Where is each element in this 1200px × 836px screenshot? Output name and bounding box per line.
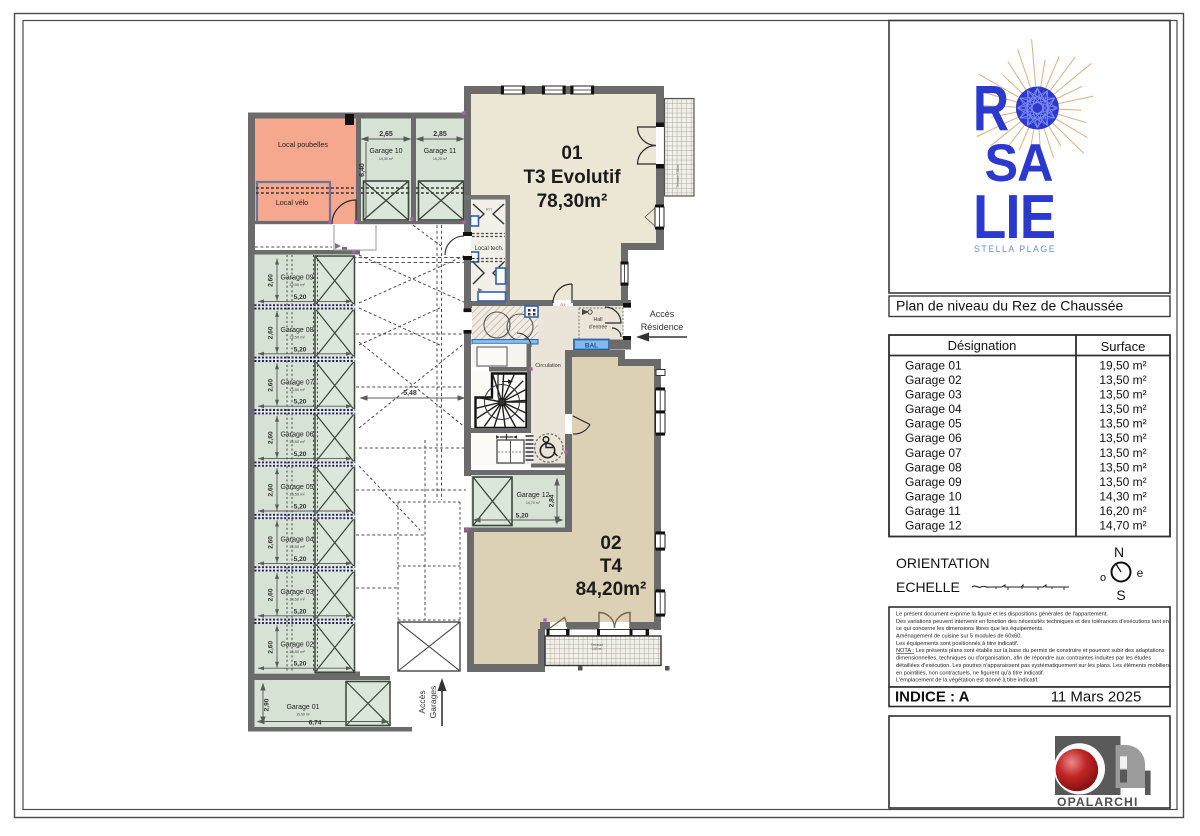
svg-text:2,60: 2,60 (268, 326, 275, 339)
svg-text:Garage 03: Garage 03 (280, 589, 313, 596)
svg-text:14,30 m²: 14,30 m² (1099, 490, 1146, 504)
svg-text:Garage 11: Garage 11 (905, 504, 961, 518)
svg-text:Garages: Garages (428, 686, 438, 719)
svg-text:5,20: 5,20 (294, 346, 307, 353)
svg-text:16,20 m²: 16,20 m² (1099, 504, 1146, 518)
svg-text:2,60: 2,60 (268, 536, 275, 549)
svg-text:5,20: 5,20 (294, 294, 307, 301)
svg-text:84,20m²: 84,20m² (576, 579, 647, 600)
svg-text:6,40: 6,40 (359, 163, 366, 177)
svg-text:13,50 m²: 13,50 m² (1099, 446, 1146, 460)
svg-text:13,50 m²: 13,50 m² (1099, 417, 1146, 431)
svg-text:Les équipements sont positionn: Les équipements sont positionnés à titre… (896, 641, 1019, 647)
svg-text:2,60: 2,60 (268, 274, 275, 287)
svg-text:13,50 m²: 13,50 m² (1099, 460, 1146, 474)
svg-text:T4: T4 (600, 556, 623, 577)
svg-text:Garage 08: Garage 08 (280, 327, 313, 334)
svg-text:BAL: BAL (585, 343, 598, 350)
svg-text:LIE: LIE (973, 183, 1055, 252)
svg-text:NOTA : Les présents plans sont: NOTA : Les présents plans sont établis s… (896, 648, 1165, 654)
svg-text:Garage 11: Garage 11 (424, 148, 457, 155)
svg-text:13,50 m²: 13,50 m² (1099, 431, 1146, 445)
svg-text:détaillées d'exécution. Les po: détaillées d'exécution. Les poutres n'ap… (896, 663, 1170, 669)
svg-text:L'emplacement de la végétation: L'emplacement de la végétation est donné… (896, 678, 1039, 684)
svg-text:Accès: Accès (417, 690, 427, 713)
svg-text:14,70 m²: 14,70 m² (1099, 519, 1146, 533)
svg-text:2,60: 2,60 (268, 641, 275, 654)
svg-text:STELLA PLAGE: STELLA PLAGE (974, 244, 1056, 254)
svg-text:Garage 09: Garage 09 (905, 475, 962, 489)
svg-text:Garage 05: Garage 05 (280, 484, 313, 491)
svg-text:Circulation: Circulation (535, 363, 560, 369)
svg-text:o: o (1100, 572, 1106, 584)
svg-text:PTT: PTT (486, 208, 492, 212)
svg-text:19,50 m²: 19,50 m² (1099, 359, 1146, 373)
svg-text:T3 Evolutif: T3 Evolutif (523, 167, 621, 188)
svg-text:16,20 m²: 16,20 m² (433, 157, 448, 161)
svg-text:Garage 05: Garage 05 (905, 417, 962, 431)
svg-text:Des variations peuvent interve: Des variations peuvent intervenir en fon… (896, 619, 1169, 625)
svg-text:Le présent document exprime la: Le présent document exprime la figure et… (896, 612, 1108, 618)
svg-text:Garage 07: Garage 07 (280, 379, 313, 386)
svg-text:5,20: 5,20 (516, 513, 529, 520)
svg-text:5,20: 5,20 (294, 504, 307, 511)
svg-text:9,60 m²: 9,60 m² (592, 647, 603, 651)
svg-text:e: e (1137, 566, 1144, 580)
svg-text:2,90: 2,90 (264, 698, 271, 711)
svg-text:13,50 m²: 13,50 m² (1099, 475, 1146, 489)
svg-text:Garage 09: Garage 09 (280, 275, 313, 282)
svg-text:13,50 m²: 13,50 m² (1099, 373, 1146, 387)
svg-text:ORIENTATION: ORIENTATION (896, 555, 990, 571)
svg-text:dimensionnelles, techniques ou: dimensionnelles, techniques ou d'organis… (896, 656, 1151, 662)
svg-text:Garage 04: Garage 04 (280, 537, 313, 544)
svg-text:2,60: 2,60 (268, 483, 275, 496)
svg-text:en pointillés, non contractuel: en pointillés, non contractuels, ne figu… (896, 670, 1045, 676)
svg-text:Accès: Accès (650, 309, 675, 319)
svg-text:ECHELLE: ECHELLE (896, 579, 960, 595)
svg-text:Résidence: Résidence (641, 322, 684, 332)
svg-text:Garage 06: Garage 06 (280, 432, 313, 439)
svg-text:13,50 m²: 13,50 m² (1099, 402, 1146, 416)
svg-text:01: 01 (561, 143, 583, 164)
svg-text:Surface: Surface (1101, 339, 1146, 354)
svg-text:Garage 10: Garage 10 (905, 490, 962, 504)
svg-text:6,74: 6,74 (309, 720, 322, 727)
svg-text:13,50 m²: 13,50 m² (1099, 388, 1146, 402)
svg-text:Garage 03: Garage 03 (905, 388, 962, 402)
svg-text:d'entrée: d'entrée (589, 325, 608, 331)
svg-text:S: S (1116, 587, 1125, 603)
svg-text:Hall: Hall (594, 317, 603, 323)
svg-text:Plan de niveau du Rez de Chaus: Plan de niveau du Rez de Chaussée (896, 298, 1123, 314)
svg-text:2,60: 2,60 (268, 379, 275, 392)
svg-text:Local tech.: Local tech. (474, 246, 503, 252)
svg-text:5,20: 5,20 (294, 661, 307, 668)
svg-text:OPALARCHI: OPALARCHI (1057, 795, 1138, 809)
svg-text:Garage 01: Garage 01 (286, 704, 319, 711)
svg-text:Garage 12: Garage 12 (516, 492, 549, 499)
svg-text:5,20: 5,20 (294, 399, 307, 406)
svg-text:Terrasse 7,80m²: Terrasse 7,80m² (676, 164, 680, 187)
svg-text:Désignation: Désignation (948, 338, 1017, 353)
svg-text:Local vélo: Local vélo (276, 198, 308, 207)
svg-text:2,60: 2,60 (268, 431, 275, 444)
svg-text:2,84: 2,84 (549, 494, 556, 507)
svg-text:Garage 08: Garage 08 (905, 460, 962, 474)
svg-text:Aménagement de cuisine sur 5 m: Aménagement de cuisine sur 5 modules de … (896, 634, 1022, 640)
svg-text:2,60: 2,60 (268, 588, 275, 601)
svg-text:11 Mars 2025: 11 Mars 2025 (1051, 689, 1142, 706)
svg-text:14,70 m²: 14,70 m² (526, 501, 541, 505)
svg-text:INDICE : A: INDICE : A (895, 689, 970, 706)
svg-text:2,85: 2,85 (433, 131, 447, 138)
svg-text:Local poubelles: Local poubelles (278, 140, 328, 149)
svg-text:Garage 07: Garage 07 (905, 446, 962, 460)
svg-text:19,50 m²: 19,50 m² (296, 713, 310, 717)
svg-text:5,20: 5,20 (294, 556, 307, 563)
svg-text:Garage 10: Garage 10 (369, 148, 402, 155)
svg-text:5,20: 5,20 (294, 608, 307, 615)
svg-text:Garage 02: Garage 02 (905, 373, 962, 387)
svg-text:Garage 01: Garage 01 (905, 359, 962, 373)
svg-text:02: 02 (600, 533, 621, 554)
svg-text:N: N (1114, 544, 1124, 560)
svg-text:Garage 06: Garage 06 (905, 431, 962, 445)
svg-text:Garage 02: Garage 02 (280, 641, 313, 648)
svg-text:Garage 12: Garage 12 (905, 519, 962, 533)
svg-text:78,30m²: 78,30m² (537, 191, 608, 212)
svg-text:ce qui concerne les dimensions: ce qui concerne les dimensions libres qu… (896, 626, 1044, 632)
svg-text:2,65: 2,65 (379, 131, 393, 138)
svg-text:14,30 m²: 14,30 m² (379, 157, 394, 161)
svg-text:5,48: 5,48 (403, 390, 417, 397)
svg-text:Garage 04: Garage 04 (905, 402, 962, 416)
svg-text:5,20: 5,20 (294, 451, 307, 458)
